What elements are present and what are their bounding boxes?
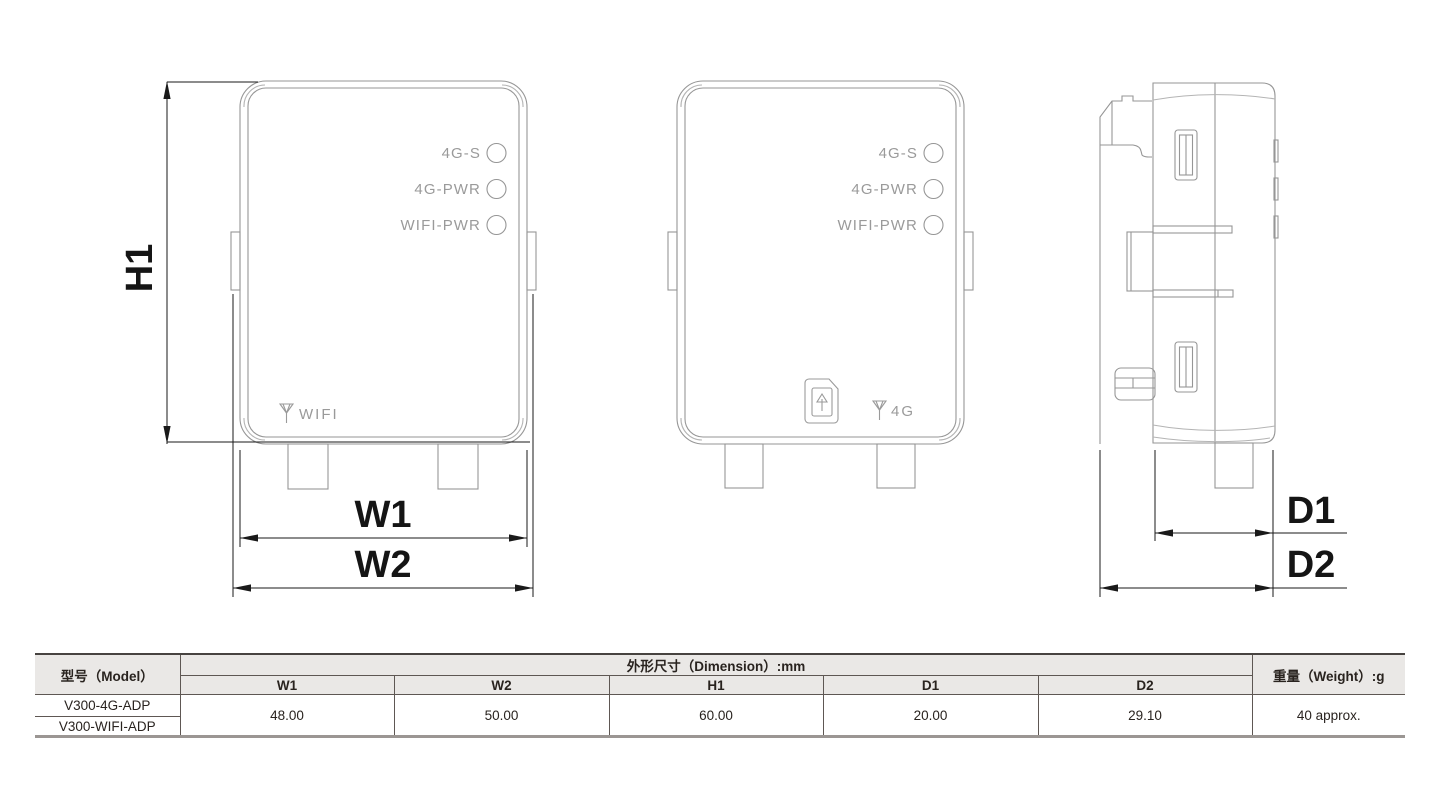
left-mount-tab	[668, 232, 677, 290]
led-label-4g-s: 4G-S	[879, 145, 918, 162]
led-label-4g-pwr: 4G-PWR	[851, 181, 918, 198]
weight-header-cell: 重量（Weight）:g	[1252, 654, 1405, 695]
dim-w1-label: W1	[355, 494, 412, 536]
wifi-antenna-label: WIFI	[299, 406, 339, 423]
device-face	[248, 88, 519, 437]
device-face	[685, 88, 956, 437]
dimension-lines	[167, 82, 1347, 597]
4g-antenna-icon	[873, 401, 886, 420]
din-rail-bracket	[1100, 96, 1152, 444]
front-view-4g	[668, 81, 973, 488]
led-label-wifi-pwr: WIFI-PWR	[401, 217, 481, 234]
device-outer-shell	[240, 81, 527, 444]
led-4g-pwr	[924, 180, 943, 199]
left-mount-tab	[231, 232, 240, 290]
right-mount-tab	[527, 232, 536, 290]
col-header-w2: W2	[394, 676, 609, 695]
value-w1: 48.00	[180, 695, 394, 737]
wifi-antenna-icon	[280, 404, 293, 423]
dimension-arrowheads	[163, 81, 1273, 592]
dimension-header-cell: 外形尺寸（Dimension）:mm	[180, 654, 1252, 676]
col-header-d2: D2	[1038, 676, 1252, 695]
side-view	[1100, 83, 1278, 488]
dim-w2-label: W2	[355, 544, 412, 586]
foot	[1215, 443, 1253, 488]
model-header-cell: 型号（Model）	[35, 654, 180, 695]
lower-hook	[1115, 368, 1155, 400]
4g-antenna-label: 4G	[891, 403, 915, 420]
technical-drawing: 4G-S 4G-PWR WIFI-PWR WIFI 4G-S 4G-PW	[0, 0, 1440, 645]
model-cell-wifi: V300-WIFI-ADP	[35, 717, 180, 737]
led-4g-pwr	[487, 180, 506, 199]
foot	[877, 444, 915, 488]
col-header-h1: H1	[609, 676, 823, 695]
col-header-w1: W1	[180, 676, 394, 695]
lower-slot	[1175, 342, 1197, 392]
dim-d1-label: D1	[1287, 490, 1336, 532]
value-h1: 60.00	[609, 695, 823, 737]
value-weight: 40 approx.	[1252, 695, 1405, 737]
led-label-wifi-pwr: WIFI-PWR	[838, 217, 918, 234]
led-label-4g-pwr: 4G-PWR	[414, 181, 481, 198]
value-d1: 20.00	[823, 695, 1038, 737]
led-label-4g-s: 4G-S	[442, 145, 481, 162]
led-4g-s	[924, 144, 943, 163]
led-4g-s	[487, 144, 506, 163]
led-wifi-pwr	[487, 216, 506, 235]
sim-card-icon	[805, 379, 838, 423]
foot	[438, 444, 478, 489]
model-cell-4g: V300-4G-ADP	[35, 695, 180, 717]
value-w2: 50.00	[394, 695, 609, 737]
col-header-d1: D1	[823, 676, 1038, 695]
side-body	[1153, 83, 1275, 443]
foot	[288, 444, 328, 489]
value-d2: 29.10	[1038, 695, 1252, 737]
middle-clip	[1127, 226, 1233, 297]
device-outer-shell	[677, 81, 964, 444]
front-view-wifi	[231, 81, 536, 489]
dimension-drawing-page: 4G-S 4G-PWR WIFI-PWR WIFI 4G-S 4G-PW	[0, 0, 1440, 797]
dim-h1-label: H1	[119, 244, 161, 293]
dim-d2-label: D2	[1287, 544, 1336, 586]
upper-slot	[1175, 130, 1197, 180]
spec-table: 型号（Model） 外形尺寸（Dimension）:mm 重量（Weight）:…	[35, 653, 1405, 738]
led-wifi-pwr	[924, 216, 943, 235]
right-mount-tab	[964, 232, 973, 290]
foot	[725, 444, 763, 488]
spec-table-container: 型号（Model） 外形尺寸（Dimension）:mm 重量（Weight）:…	[35, 653, 1405, 738]
